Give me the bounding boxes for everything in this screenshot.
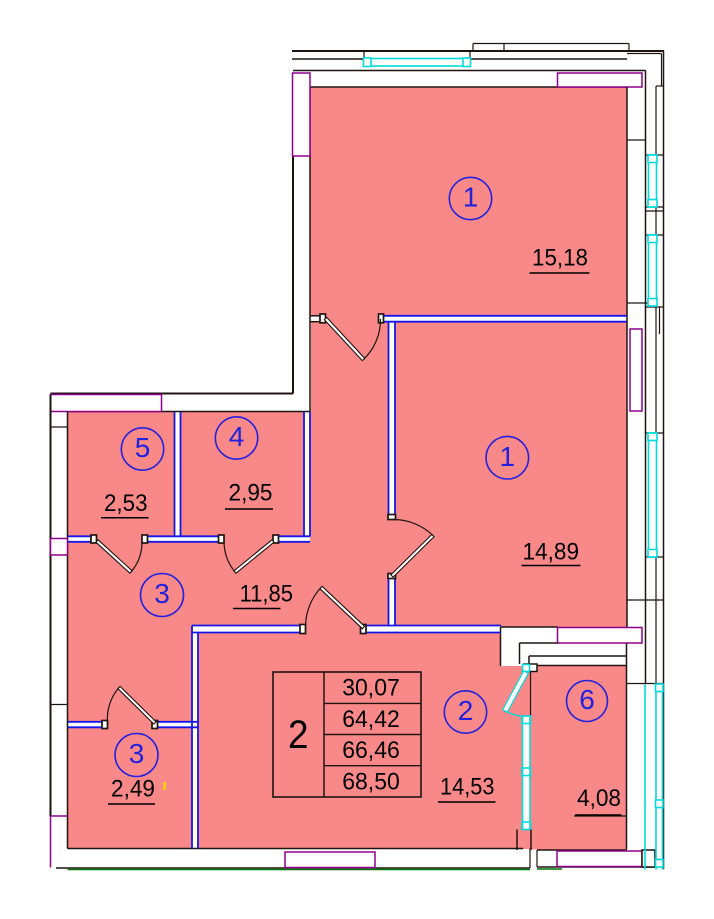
svg-text:2,53: 2,53	[104, 490, 148, 517]
svg-text:14,89: 14,89	[523, 539, 580, 566]
svg-text:11,85: 11,85	[240, 581, 294, 608]
svg-text:66,46: 66,46	[342, 737, 400, 764]
svg-text:1: 1	[463, 182, 479, 213]
svg-text:6: 6	[579, 684, 595, 715]
svg-text:4,08: 4,08	[577, 785, 621, 812]
svg-text:14,53: 14,53	[440, 774, 495, 801]
svg-text:3: 3	[154, 578, 170, 609]
svg-text:4: 4	[229, 421, 245, 452]
svg-text:30,07: 30,07	[342, 674, 400, 701]
svg-text:1: 1	[500, 441, 516, 472]
svg-text:68,50: 68,50	[342, 768, 400, 795]
svg-text:3: 3	[129, 738, 145, 769]
svg-text:2: 2	[458, 695, 474, 726]
svg-text:2: 2	[288, 713, 309, 757]
svg-text:2,95: 2,95	[229, 480, 273, 507]
svg-text:64,42: 64,42	[342, 706, 400, 733]
svg-text:5: 5	[135, 432, 151, 463]
svg-text:15,18: 15,18	[532, 245, 588, 272]
svg-text:2,49: 2,49	[111, 776, 155, 803]
